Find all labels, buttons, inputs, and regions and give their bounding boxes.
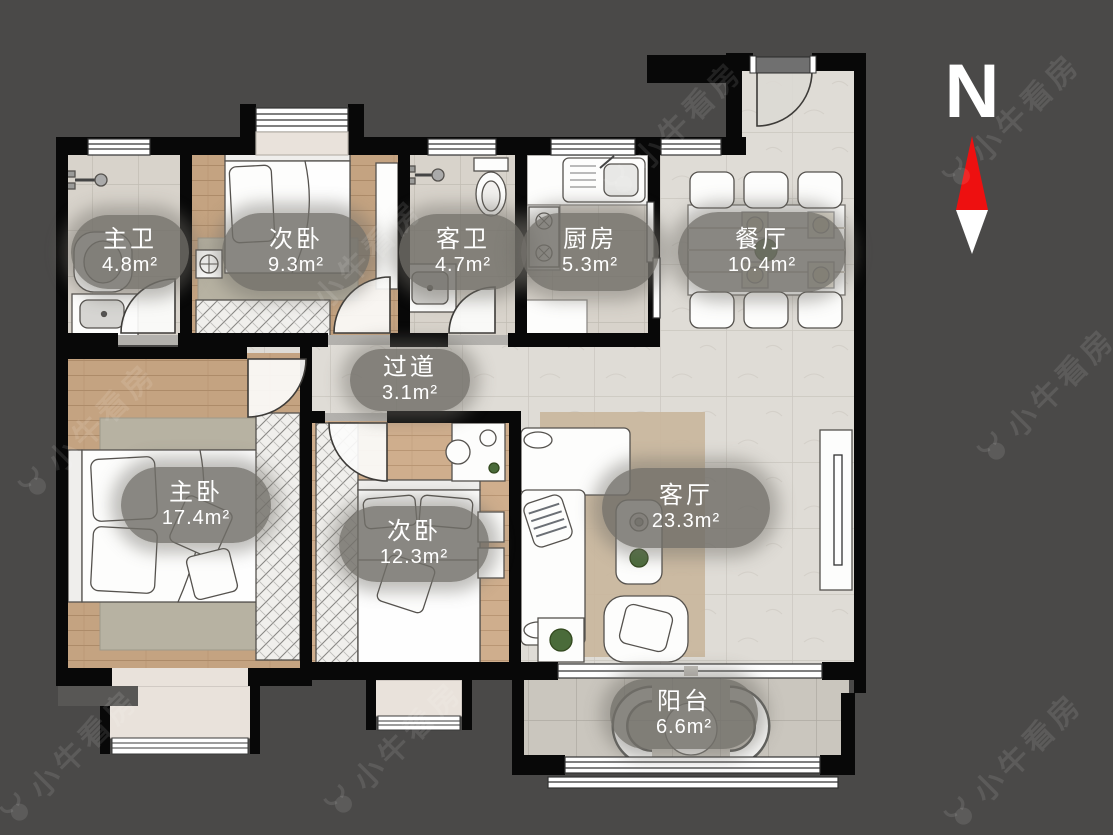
room-name: 次卧 [269,227,323,254]
dining-window [661,139,721,155]
living-side-table [538,618,584,662]
room-area: 9.3m² [268,254,324,276]
balcony-sliding-door [558,664,822,678]
room-label-hallway: 过道 3.1m² [350,349,470,411]
room-label-guest-bath: 客卫 4.7m² [399,214,527,290]
bedroom-north-window [240,104,364,155]
room-label-master-bath: 主卫 4.8m² [71,215,189,289]
room-name: 主卧 [169,480,223,507]
room-label-bedroom-south: 次卧 12.3m² [339,506,489,582]
bedroom-north-dresser [376,163,398,289]
room-label-dining-room: 餐厅 10.4m² [678,212,846,292]
kitchen-window [551,139,635,155]
kitchen-sink [563,156,645,202]
balcony-window [548,757,838,788]
master-wardrobe [256,413,300,660]
compass-needle-icon [950,134,994,256]
entry-door-panel [754,57,812,73]
bay-windows [100,680,472,754]
room-name: 厨房 [563,227,617,254]
room-label-bedroom-north: 次卧 9.3m² [222,213,370,291]
room-area: 4.8m² [102,254,158,276]
guest-bath-toilet [474,158,508,216]
room-label-living-room: 客厅 23.3m² [602,468,770,548]
room-name: 客厅 [659,483,713,510]
room-name: 主卫 [103,227,157,254]
room-area: 10.4m² [728,254,796,276]
bedroom-south-desk [446,423,505,481]
living-armchair [604,596,688,662]
room-area: 4.7m² [435,254,491,276]
room-name: 过道 [383,355,437,382]
master-bath-window [88,139,150,155]
room-name: 次卧 [387,519,441,546]
bedroom-south-bay-window [378,716,460,730]
guest-bath-window [428,139,496,155]
room-area: 12.3m² [380,546,448,568]
room-name: 阳台 [657,689,711,716]
room-label-master-bedroom: 主卧 17.4m² [121,467,271,543]
exterior-step [58,686,138,706]
room-area: 6.6m² [656,716,712,738]
room-label-kitchen: 厨房 5.3m² [521,213,659,291]
bedroom-south-bay-sill [375,680,462,716]
room-area: 5.3m² [562,254,618,276]
room-label-balcony: 阳台 6.6m² [610,679,758,749]
tv-cabinet [820,430,852,590]
room-name: 餐厅 [735,227,789,254]
bedroom-north-nightstand [196,250,222,278]
room-name: 客卫 [436,227,490,254]
room-area: 23.3m² [652,510,720,532]
floor-plan-canvas: 主卫 4.8m² 次卧 9.3m² 客卫 4.7m² 厨房 5.3m² 餐厅 1… [0,0,1113,835]
master-bay-window [112,738,248,754]
room-area: 17.4m² [162,507,230,529]
compass: N [938,56,1006,256]
compass-north-letter: N [938,56,1006,128]
room-area: 3.1m² [382,382,438,404]
